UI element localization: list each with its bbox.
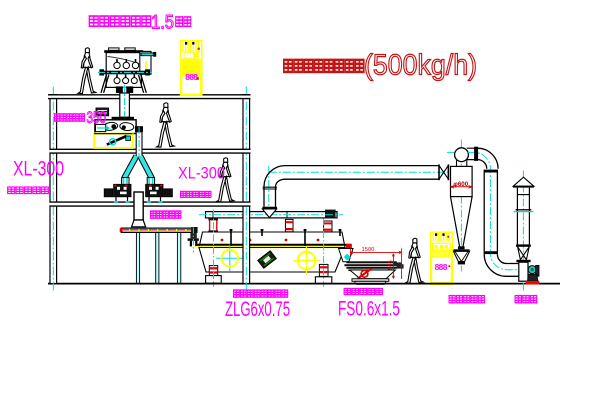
svg-text:FS0.6x1.5: FS0.6x1.5: [338, 298, 400, 321]
svg-text:(500kg/h): (500kg/h): [364, 50, 477, 82]
svg-text:1500: 1500: [362, 247, 375, 253]
svg-text:545: 545: [388, 260, 394, 270]
svg-text:1.5: 1.5: [151, 13, 174, 34]
svg-text:350: 350: [87, 109, 107, 127]
svg-text:φ600: φ600: [453, 181, 468, 188]
svg-text:888: 888: [185, 72, 198, 82]
svg-text:ZLG6x0.75: ZLG6x0.75: [225, 297, 290, 321]
svg-text:XL-300: XL-300: [178, 165, 225, 183]
svg-text:XL-300: XL-300: [13, 158, 64, 181]
